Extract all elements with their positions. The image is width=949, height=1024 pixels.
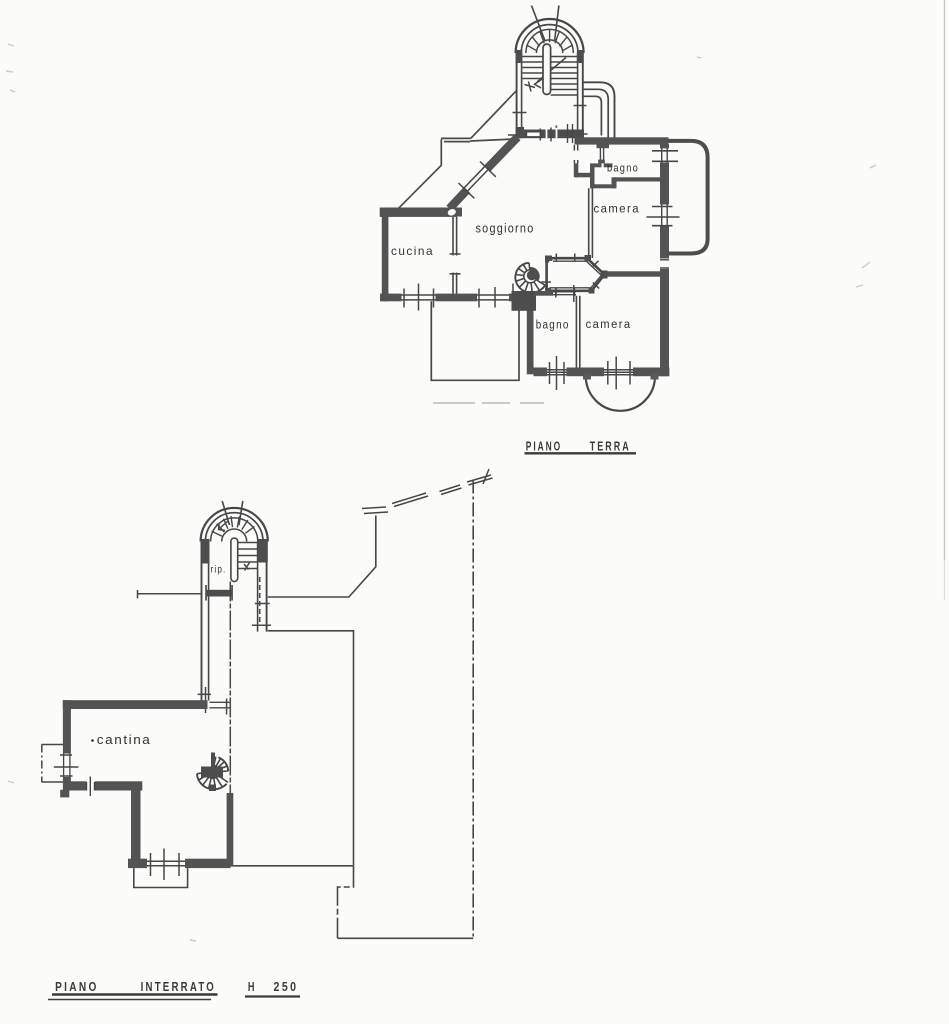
svg-text:camera: camera (586, 319, 632, 331)
svg-text:cantina: cantina (97, 732, 152, 747)
svg-text:rip.: rip. (211, 564, 227, 576)
svg-text:bagno: bagno (607, 163, 639, 175)
svg-text:INTERRATO: INTERRATO (141, 979, 216, 994)
svg-text:250: 250 (274, 979, 299, 994)
svg-text:PIANO: PIANO (55, 979, 99, 994)
svg-text:H: H (248, 979, 257, 994)
svg-text:TERRA: TERRA (590, 439, 631, 454)
svg-text:soggiorno: soggiorno (476, 221, 535, 236)
svg-text:PIANO: PIANO (526, 439, 562, 454)
svg-text:bagno: bagno (536, 320, 570, 332)
svg-text:cucina: cucina (391, 244, 434, 258)
svg-text:camera: camera (594, 204, 641, 216)
